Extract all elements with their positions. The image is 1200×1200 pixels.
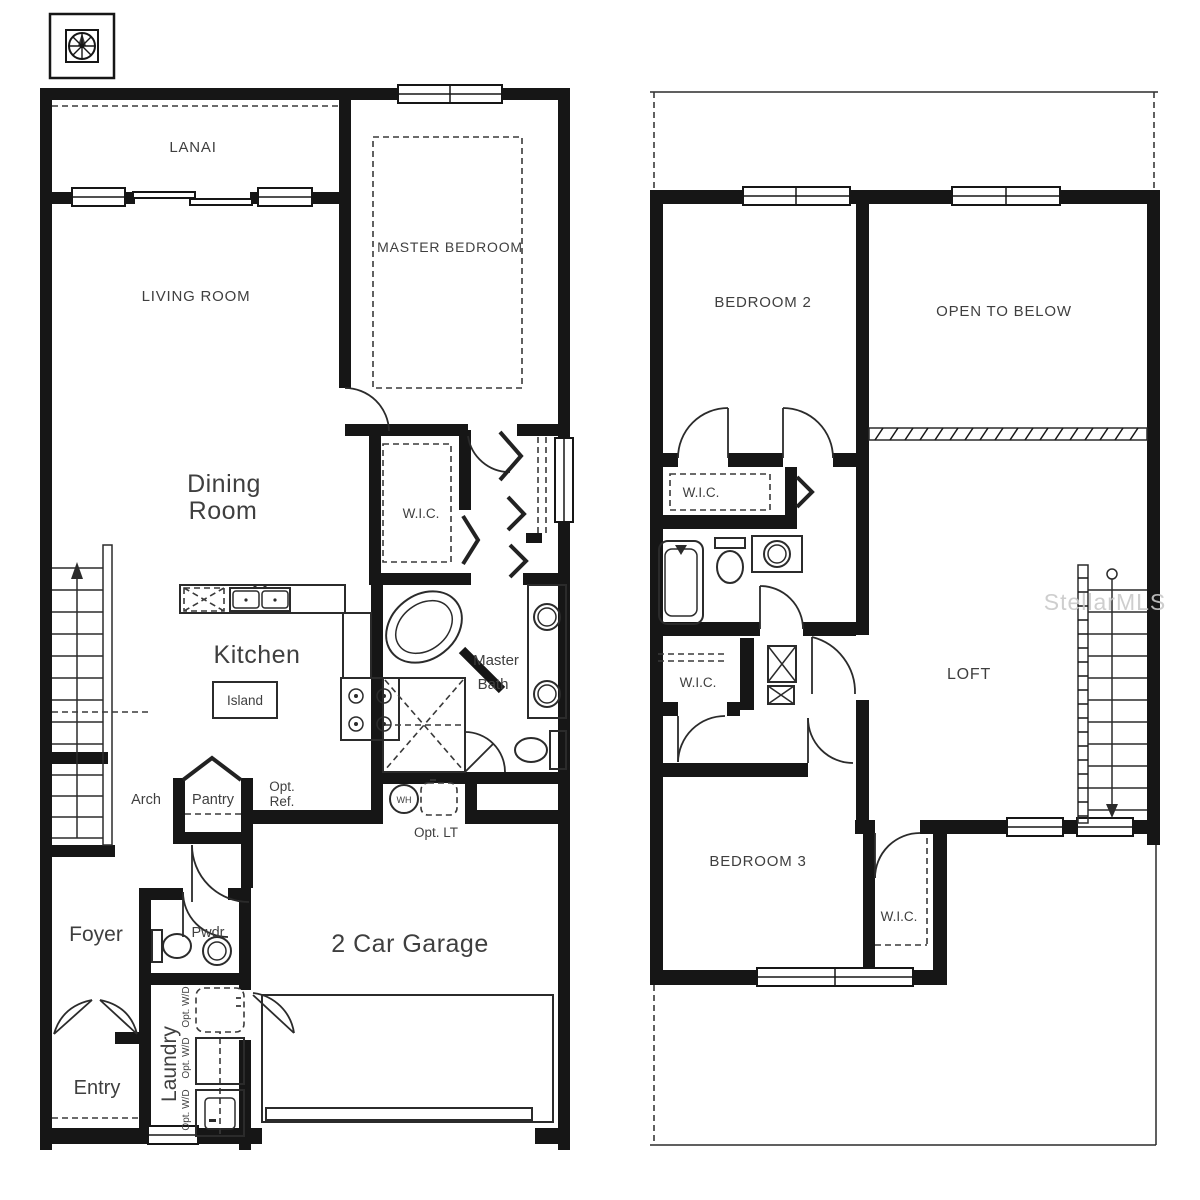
entry-label: Entry [74,1077,121,1099]
floor2-plan: BEDROOM 2 OPEN TO BELOW W.I.C. LOFT W.I.… [650,92,1160,1145]
lanai-window-right [258,188,312,206]
lanai-slider-door [133,192,252,205]
floor1-labels: LANAI LIVING ROOM MASTER BEDROOM Dining … [69,139,523,1131]
walk-in-shower [383,678,465,772]
toilet2 [715,538,745,583]
lanai-label: LANAI [169,139,216,156]
wic-mid-label: W.I.C. [680,675,717,690]
opt-wd-label-mid: Opt. W/D [181,1037,192,1078]
powder-sink [203,937,231,965]
loft-window-right [1077,818,1133,836]
bedroom3-window [757,968,913,986]
kitchen-label: Kitchen [214,641,301,669]
hall-closet-door-chevron [500,432,521,480]
lanai-window-left [72,188,125,206]
optional-washer-dryer-tub [196,988,244,1032]
bath2-door-arc [760,586,803,629]
master-ceiling-outline [373,137,522,388]
linen-closet [768,646,796,704]
wic-upper-label: W.I.C. [683,485,720,500]
opt-ref-label-line2: Ref. [270,794,295,809]
bedroom2-window [743,187,850,205]
bedroom3-label: BEDROOM 3 [709,853,806,870]
floor2-roof-outline [650,92,1158,1145]
optional-laundry-tub [421,780,457,815]
master-bath-label-line1: Master [473,652,519,669]
hall-door-chevron [797,477,812,507]
bedroom2-label: BEDROOM 2 [714,294,811,311]
bedroom2-closet-door-arc [678,408,728,458]
wic3-door-arc [875,833,920,878]
optional-appliance-box [184,588,224,611]
loft-window-left [1007,818,1063,836]
pantry-label: Pantry [192,792,235,808]
kitchen-sink [230,585,290,611]
arch-label: Arch [131,792,161,808]
linen-door-chevron-2 [510,545,526,577]
master-hall-door-arc [468,436,510,472]
living-room-label: LIVING ROOM [142,288,251,305]
floor-plan-drawing: LANAI LIVING ROOM MASTER BEDROOM Dining … [0,0,1200,1200]
garden-tub [372,577,476,678]
wic-shelving [383,444,451,562]
foyer-label: Foyer [69,923,123,946]
wic2-door-arc [678,716,725,762]
dining-room-label-line2: Room [189,497,258,525]
open-to-below-label: OPEN TO BELOW [936,303,1072,320]
linen-door-chevron [508,497,524,530]
floor1-laundry-appliances [196,988,244,1136]
opt-lt-label: Opt. LT [414,825,458,840]
wic-lower-label: W.I.C. [881,909,918,924]
island-label: Island [227,693,263,708]
stairs-down-arrow [1106,804,1118,818]
stair-newel [1107,569,1117,579]
wic-door-chevron [463,516,478,564]
loft-label: LOFT [947,666,991,683]
floor2-railing [869,428,1147,440]
open-below-window [952,187,1060,205]
garage-label: 2 Car Garage [331,930,488,958]
pwdr-label: Pwdr [191,925,224,941]
wh-label: WH [397,795,412,805]
master-bedroom-window [398,85,502,103]
opt-ref-label-line1: Opt. [269,779,295,794]
dining-room-label-line1: Dining [187,470,261,498]
opt-wd-label-bottom: Opt. W/D [181,1089,192,1130]
bathtub [659,541,703,624]
master-bath-label-line2: Bath [478,676,509,693]
bedroom3-door-arc [808,718,853,763]
bedroom2-door-arc [783,408,833,458]
wic-label: W.I.C. [403,506,440,521]
floor-plan-page: LANAI LIVING ROOM MASTER BEDROOM Dining … [0,0,1200,1200]
vanity2 [752,536,802,572]
floor2-doors [678,408,920,878]
floor1-plan: LANAI LIVING ROOM MASTER BEDROOM Dining … [40,85,573,1150]
hall-side-window [555,438,573,522]
stove [341,678,399,740]
powder-toilet [152,930,191,962]
master-bedroom-label: MASTER BEDROOM [377,239,523,255]
garage-pad [262,995,553,1122]
laundry-label: Laundry [158,1026,181,1102]
pantry-arch-chevron [183,758,241,780]
floor2-dashed-outlines [658,474,927,945]
opt-wd-label-top: Opt. W/D [181,986,192,1027]
loft-door-arc [812,637,855,694]
floor1-garage-features [262,995,553,1122]
compass-icon [50,14,114,78]
garage-door [266,1108,532,1120]
watermark: StellarMLS [1044,589,1166,615]
